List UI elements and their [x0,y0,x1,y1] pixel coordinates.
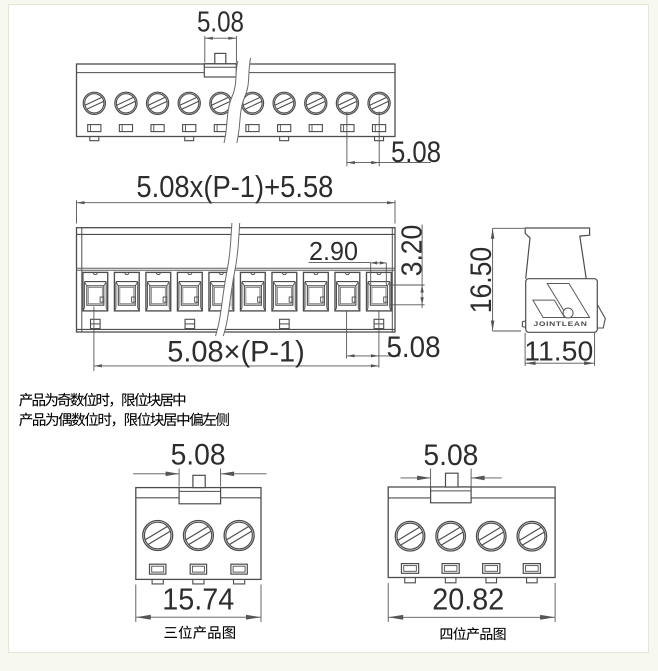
svg-text:5.08x(P-1)+5.58: 5.08x(P-1)+5.58 [136,169,333,204]
svg-text:5.08: 5.08 [171,438,226,471]
svg-text:5.08: 5.08 [391,136,441,169]
svg-text:20.82: 20.82 [432,581,504,616]
svg-text:11.50: 11.50 [524,336,593,367]
svg-text:5.08: 5.08 [387,331,441,364]
svg-text:16.50: 16.50 [465,247,498,313]
svg-text:5.08: 5.08 [197,6,244,38]
svg-text:5.08×(P-1): 5.08×(P-1) [167,336,305,369]
svg-text:JOINTLEAN: JOINTLEAN [534,321,588,328]
svg-text:2.90: 2.90 [309,238,358,266]
svg-text:15.74: 15.74 [162,581,234,616]
svg-text:3.20: 3.20 [396,225,428,277]
svg-text:5.08: 5.08 [423,439,478,472]
